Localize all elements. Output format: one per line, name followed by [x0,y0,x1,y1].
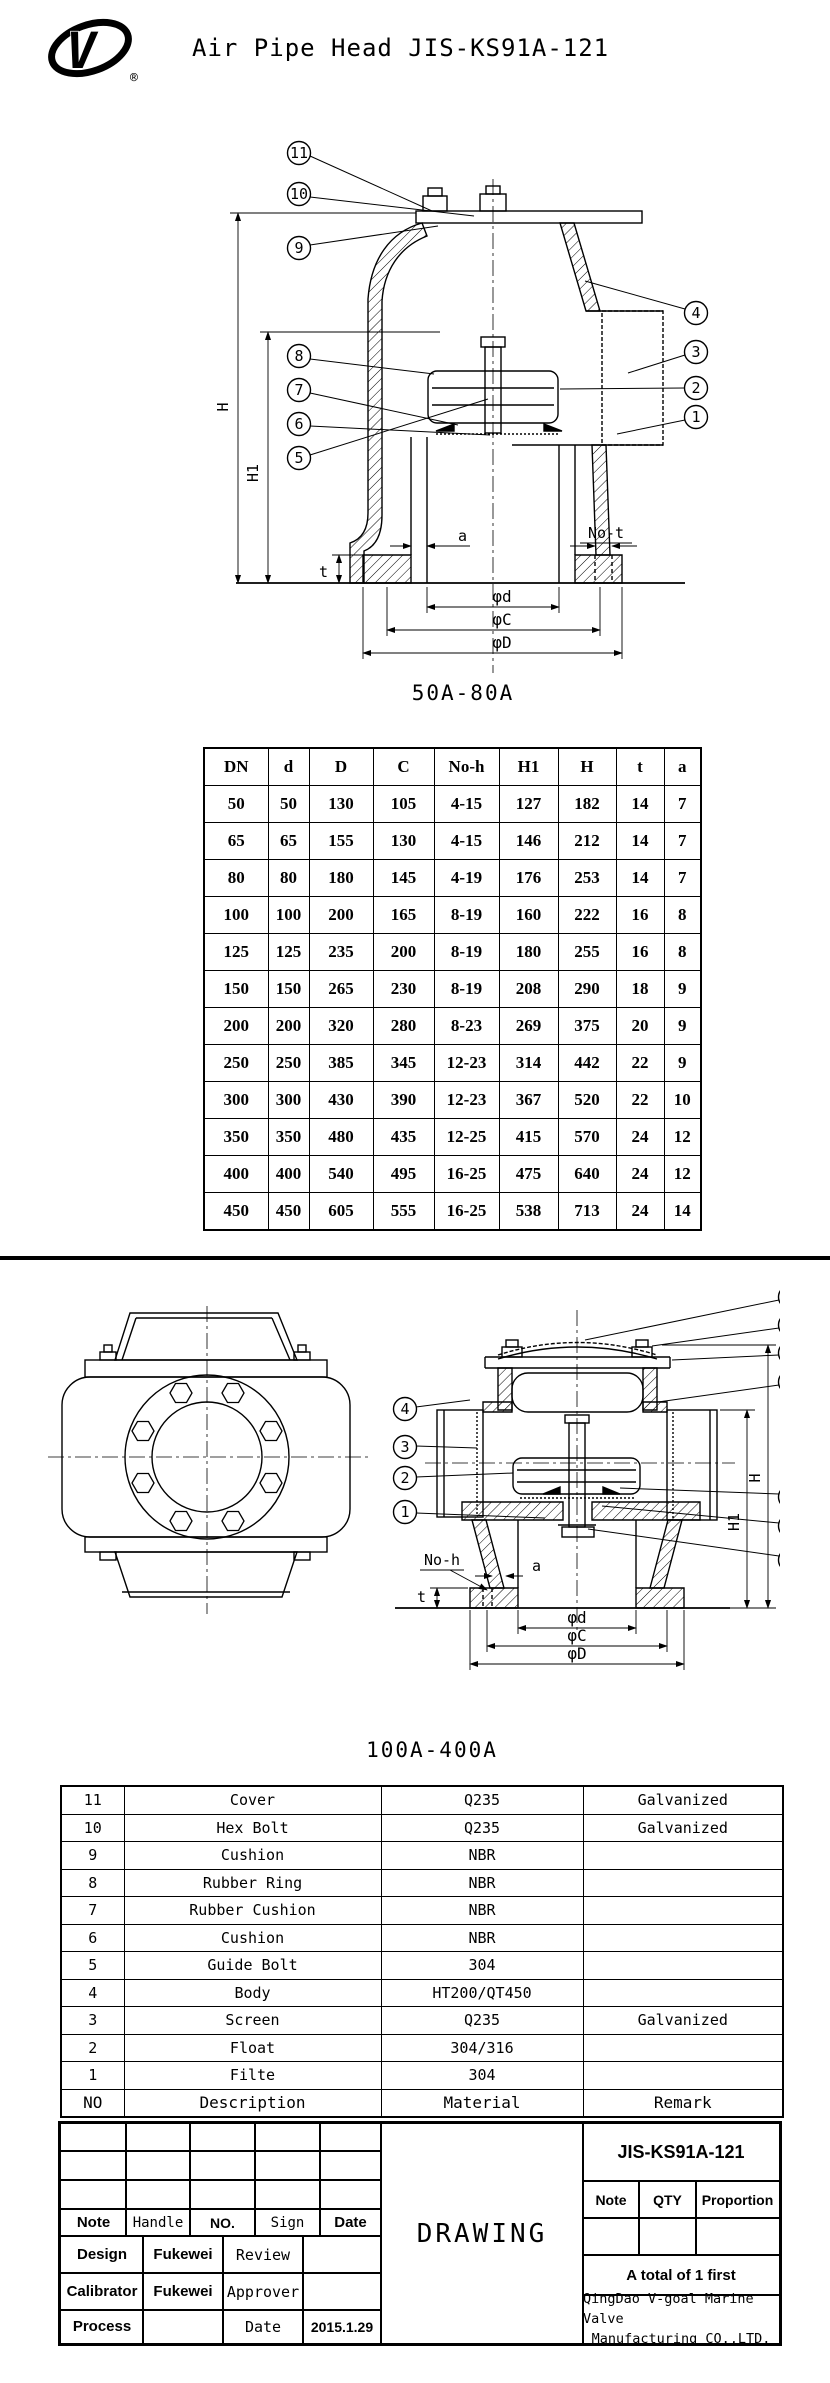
table-cell: 1 [61,2062,124,2090]
table-cell: Galvanized [583,1786,783,1814]
table-cell: 5 [61,1952,124,1980]
table-cell: 212 [558,823,616,860]
table-cell: 24 [616,1193,664,1231]
table-cell: 290 [558,971,616,1008]
table-cell: 250 [268,1045,309,1082]
company-line2: Manufacturing CO.,LTD. [592,2329,771,2349]
table-cell: 9 [664,1045,701,1082]
table-row: 30030043039012-233675202210 [204,1082,701,1119]
table-cell: 222 [558,897,616,934]
table-cell: 150 [268,971,309,1008]
table-cell: 230 [373,971,434,1008]
table-cell: Cushion [124,1842,381,1870]
empty-cell [254,2150,321,2181]
table-cell: 155 [309,823,373,860]
process-label: Process [60,2309,144,2344]
svg-text:2: 2 [400,1469,409,1487]
col-header: C [373,748,434,786]
table-cell: 495 [373,1156,434,1193]
footer-cell: NO [61,2089,124,2117]
callout-10: 10 [779,1314,781,1337]
table-row: 7Rubber CushionNBR [61,1897,783,1925]
table-cell [583,2034,783,2062]
caption-100a-400a: 100A-400A [322,1738,542,1762]
dim-t: t [319,563,328,581]
table-cell: 250 [204,1045,268,1082]
table-cell: Float [124,2034,381,2062]
table-cell: 713 [558,1193,616,1231]
table-cell: 4-15 [434,786,499,823]
empty-cell [125,2150,191,2181]
table-cell: 538 [499,1193,558,1231]
svg-text:11: 11 [290,144,308,162]
table-cell: Hex Bolt [124,1814,381,1842]
table-cell: 540 [309,1156,373,1193]
col-header: No-h [434,748,499,786]
table-cell: 182 [558,786,616,823]
table-row: 5Guide Bolt304 [61,1952,783,1980]
callout-7: 7 [779,1486,781,1509]
dimension-labels: H H1 t a No-t φd φC φD [214,402,624,652]
table-cell: 8 [664,897,701,934]
table-cell: 570 [558,1119,616,1156]
svg-text:V: V [66,22,99,80]
section-divider [0,1256,830,1260]
dim-H: H [214,402,232,411]
table-cell: Filte [124,2062,381,2090]
dim-No-h: No-h [424,1551,460,1569]
table-cell [583,1979,783,2007]
table-cell: 180 [499,934,558,971]
table-cell: 555 [373,1193,434,1231]
th-sign: Sign [254,2208,321,2237]
callout-2: 2 [685,377,708,400]
vgoal-logo-icon: V ® [32,8,152,86]
dim-a: a [458,527,467,545]
svg-text:3: 3 [691,343,700,361]
table-row: 25025038534512-23314442229 [204,1045,701,1082]
table-cell: 280 [373,1008,434,1045]
approver-label: Approver [222,2272,304,2311]
table-cell: 14 [616,786,664,823]
table-cell: 130 [309,786,373,823]
callout-11: 11 [288,142,311,165]
callout-1: 1 [394,1501,417,1524]
table-cell: 14 [616,860,664,897]
drawing-100a-400a: H H1 t a No-h φd φC φD 11 10 9 [40,1280,780,1750]
table-row: 11CoverQ235Galvanized [61,1786,783,1814]
callout-9: 9 [779,1342,781,1365]
table-cell: 314 [499,1045,558,1082]
qty-th-proportion: Proportion [695,2180,780,2219]
callout-8: 8 [288,345,311,368]
table-cell: 208 [499,971,558,1008]
dimension-table: DN d D C No-h H1 H t a 50501301054-15127… [203,747,702,1231]
dim-phi-D: φD [492,633,511,652]
callout-2: 2 [394,1467,417,1490]
table-cell: 165 [373,897,434,934]
registered-mark: ® [130,71,138,86]
svg-text:7: 7 [294,381,303,399]
table-cell: 125 [204,934,268,971]
table-cell: Guide Bolt [124,1952,381,1980]
table-cell: 7 [664,786,701,823]
parts-table: 11CoverQ235Galvanized10Hex BoltQ235Galva… [60,1785,784,2118]
table-cell: 8-19 [434,934,499,971]
table-cell: 12-23 [434,1082,499,1119]
table-cell: 24 [616,1156,664,1193]
qty-qty-value [638,2217,697,2256]
table-cell: 16-25 [434,1193,499,1231]
table-cell: 8-19 [434,971,499,1008]
table-cell: 176 [499,860,558,897]
empty-cell [125,2179,191,2210]
footer-cell: Material [381,2089,583,2117]
table-cell: NBR [381,1869,583,1897]
empty-cell [254,2179,321,2210]
col-header: DN [204,748,268,786]
table-cell: 475 [499,1156,558,1193]
table-cell: 12 [664,1156,701,1193]
col-header: H1 [499,748,558,786]
callout-1: 1 [685,406,708,429]
callouts: 11 10 9 8 7 6 5 4 3 2 1 [288,142,708,470]
table-cell: HT200/QT450 [381,1979,583,2007]
table-cell: Q235 [381,2007,583,2035]
table-cell: 100 [204,897,268,934]
empty-cell [125,2123,191,2152]
table-cell: 350 [268,1119,309,1156]
empty-cell [319,2150,382,2181]
table-row: 50501301054-15127182147 [204,786,701,823]
col-header: a [664,748,701,786]
table-cell: 160 [499,897,558,934]
table-cell: 16 [616,934,664,971]
table-cell: 442 [558,1045,616,1082]
table-cell [583,1842,783,1870]
table-cell: 415 [499,1119,558,1156]
empty-cell [254,2123,321,2152]
table-cell: 7 [664,823,701,860]
table-cell: 300 [268,1082,309,1119]
table-cell: 65 [268,823,309,860]
table-cell: 8 [664,934,701,971]
flange-right [575,555,622,583]
title-block: Note Handle NO. Sign Date Design Fukewei… [58,2121,782,2346]
svg-text:4: 4 [400,1400,409,1418]
table-row: 35035048043512-254155702412 [204,1119,701,1156]
table-cell: Galvanized [583,1814,783,1842]
table-cell: 11 [61,1786,124,1814]
empty-cell [60,2123,127,2152]
table-cell: 430 [309,1082,373,1119]
dim-H1: H1 [725,1513,743,1531]
table-cell: 450 [204,1193,268,1231]
table-cell [583,1952,783,1980]
table-cell: 4-15 [434,823,499,860]
callout-leaders [310,156,685,455]
table-cell: 350 [204,1119,268,1156]
section-view [395,1310,735,1632]
callouts: 11 10 9 8 7 6 5 4 3 2 1 [394,1286,781,1572]
table-cell: 3 [61,2007,124,2035]
table-cell [583,1897,783,1925]
svg-text:4: 4 [691,304,700,322]
table-cell: 269 [499,1008,558,1045]
empty-cell [189,2150,256,2181]
company-line1: QingDao V-goal Marine Valve [583,2289,779,2330]
svg-text:10: 10 [290,185,308,203]
table-cell: 18 [616,971,664,1008]
table-cell: 10 [61,1814,124,1842]
table-cell: Rubber Cushion [124,1897,381,1925]
table-row: 9CushionNBR [61,1842,783,1870]
table-cell: 304 [381,2062,583,2090]
table-cell: 345 [373,1045,434,1082]
table-row: 8Rubber RingNBR [61,1869,783,1897]
design-label: Design [60,2235,144,2274]
table-row: 80801801454-19176253147 [204,860,701,897]
callout-6: 6 [288,413,311,436]
table-cell: Galvanized [583,2007,783,2035]
drawing-50a-80a: H H1 t a No-t φd φC φD 11 10 9 [140,85,800,710]
table-cell: Screen [124,2007,381,2035]
drawing-sheet: V ® Air Pipe Head JIS-KS91A-121 [0,0,830,2383]
table-cell: 80 [204,860,268,897]
model-number: JIS-KS91A-121 [582,2123,780,2182]
callout-3: 3 [394,1436,417,1459]
dim-t: t [417,1588,426,1606]
table-cell: 320 [309,1008,373,1045]
svg-text:6: 6 [294,415,303,433]
qty-th-qty: QTY [638,2180,697,2219]
table-row: 65651551304-15146212147 [204,823,701,860]
table-cell: 300 [204,1082,268,1119]
table-cell: 125 [268,934,309,971]
table-cell [583,1924,783,1952]
table-row: 1501502652308-19208290189 [204,971,701,1008]
table-cell: 435 [373,1119,434,1156]
table-cell: 12-25 [434,1119,499,1156]
empty-cell [189,2123,256,2152]
process-value [142,2309,224,2344]
table-cell: 7 [61,1897,124,1925]
footer-cell: Remark [583,2089,783,2117]
table-cell: 480 [309,1119,373,1156]
callout-4: 4 [685,302,708,325]
table-cell [583,1869,783,1897]
review-label: Review [222,2235,304,2274]
table-cell: 8-19 [434,897,499,934]
table-cell: 22 [616,1045,664,1082]
callout-5: 5 [288,447,311,470]
company-name: QingDao V-goal Marine Valve Manufacturin… [582,2294,780,2344]
svg-text:3: 3 [400,1438,409,1456]
callout-3: 3 [685,341,708,364]
table-cell: 50 [268,786,309,823]
table-cell: NBR [381,1897,583,1925]
table-cell: 255 [558,934,616,971]
table-cell: 16 [616,897,664,934]
table-cell: 304/316 [381,2034,583,2062]
table-cell: Q235 [381,1786,583,1814]
col-header: D [309,748,373,786]
date-label: Date [222,2309,304,2344]
bottom-funnel [115,1552,297,1597]
svg-text:9: 9 [294,239,303,257]
table-cell: 8 [61,1869,124,1897]
table-cell: 180 [309,860,373,897]
table-cell: 10 [664,1082,701,1119]
table-cell: 65 [204,823,268,860]
table-cell: 390 [373,1082,434,1119]
front-view [48,1306,370,1614]
table-cell: 24 [616,1119,664,1156]
svg-text:5: 5 [294,449,303,467]
col-header: H [558,748,616,786]
qty-proportion-value [695,2217,780,2256]
table-cell: 14 [616,823,664,860]
th-no: NO. [189,2208,256,2237]
table-cell: 304 [381,1952,583,1980]
col-header: d [268,748,309,786]
table-cell: 127 [499,786,558,823]
table-cell: 200 [268,1008,309,1045]
callout-8: 8 [779,1371,781,1394]
flange-left [363,555,411,583]
callout-4: 4 [394,1398,417,1421]
table-row: 1001002001658-19160222168 [204,897,701,934]
empty-cell [60,2179,127,2210]
table-cell: 20 [616,1008,664,1045]
approver-value [302,2272,382,2311]
caption-50a-80a: 50A-80A [353,681,573,705]
table-cell: 400 [268,1156,309,1193]
table-cell: Cover [124,1786,381,1814]
review-value [302,2235,382,2274]
calibrator-value: Fukewei [142,2272,224,2311]
table-cell: 8-23 [434,1008,499,1045]
table-cell: 14 [664,1193,701,1231]
date-value: 2015.1.29 [302,2309,382,2344]
calibrator-label: Calibrator [60,2272,144,2311]
empty-cell [319,2179,382,2210]
table-cell: 130 [373,823,434,860]
table-cell: 100 [268,897,309,934]
table-cell: 9 [664,1008,701,1045]
table-cell: 520 [558,1082,616,1119]
table-row: 3ScreenQ235Galvanized [61,2007,783,2035]
table-cell: Cushion [124,1924,381,1952]
callout-7: 7 [288,379,311,402]
table-cell: 265 [309,971,373,1008]
table-cell: 145 [373,860,434,897]
qty-th-note: Note [582,2180,640,2219]
dim-phi-d: φd [492,587,511,606]
dim-No-t: No-t [588,524,624,542]
design-value: Fukewei [142,2235,224,2274]
header-row: DN d D C No-h H1 H t a [204,748,701,786]
dim-phi-C: φC [492,610,511,629]
table-cell: 450 [268,1193,309,1231]
qty-note-value [582,2217,640,2256]
dim-H: H [746,1473,764,1482]
svg-text:8: 8 [294,347,303,365]
table-cell: 640 [558,1156,616,1193]
table-cell: 200 [373,934,434,971]
th-date: Date [319,2208,382,2237]
drawing-title: DRAWING [380,2123,584,2344]
svg-text:1: 1 [400,1503,409,1521]
table-cell: 22 [616,1082,664,1119]
top-funnel [115,1313,297,1360]
empty-cell [60,2150,127,2181]
dim-H1: H1 [244,464,262,482]
table-cell: 50 [204,786,268,823]
parts-footer-row: NO Description Material Remark [61,2089,783,2117]
table-cell: 4 [61,1979,124,2007]
page-title: Air Pipe Head JIS-KS91A-121 [192,34,609,62]
body-wall-right-upper [560,223,600,311]
table-cell: 375 [558,1008,616,1045]
table-cell: 2 [61,2034,124,2062]
table-cell: 253 [558,860,616,897]
table-cell: 6 [61,1924,124,1952]
table-row: 2Float304/316 [61,2034,783,2062]
table-cell: 400 [204,1156,268,1193]
svg-text:1: 1 [691,408,700,426]
table-cell: 605 [309,1193,373,1231]
table-cell: 9 [61,1842,124,1870]
table-row: 1Filte304 [61,2062,783,2090]
rubber-cushion [543,1487,560,1494]
table-cell: 200 [204,1008,268,1045]
table-cell: 150 [204,971,268,1008]
table-cell: 16-25 [434,1156,499,1193]
callout-6: 6 [779,1515,781,1538]
table-cell: 12-23 [434,1045,499,1082]
table-cell: NBR [381,1924,583,1952]
dim-phi-C: φC [567,1626,586,1645]
callout-9: 9 [288,237,311,260]
table-row: 1251252352008-19180255168 [204,934,701,971]
table-cell: Rubber Ring [124,1869,381,1897]
table-cell: 235 [309,934,373,971]
table-cell: 12 [664,1119,701,1156]
table-cell: 146 [499,823,558,860]
table-cell: 385 [309,1045,373,1082]
table-row: 4BodyHT200/QT450 [61,1979,783,2007]
callout-10: 10 [288,183,311,206]
dimensions [230,213,637,659]
table-row: 45045060555516-255387132414 [204,1193,701,1231]
table-cell: 367 [499,1082,558,1119]
rubber-cushion [436,424,454,431]
callout-5: 5 [779,1549,781,1572]
dim-phi-D: φD [567,1644,586,1663]
table-cell: 4-19 [434,860,499,897]
table-cell: 105 [373,786,434,823]
th-handle: Handle [125,2208,191,2237]
dim-a: a [532,1557,541,1575]
table-cell: 80 [268,860,309,897]
table-cell: 7 [664,860,701,897]
th-note: Note [60,2208,127,2237]
table-row: 6CushionNBR [61,1924,783,1952]
table-cell [583,2062,783,2090]
table-cell: 9 [664,971,701,1008]
dim-phi-d: φd [567,1608,586,1627]
